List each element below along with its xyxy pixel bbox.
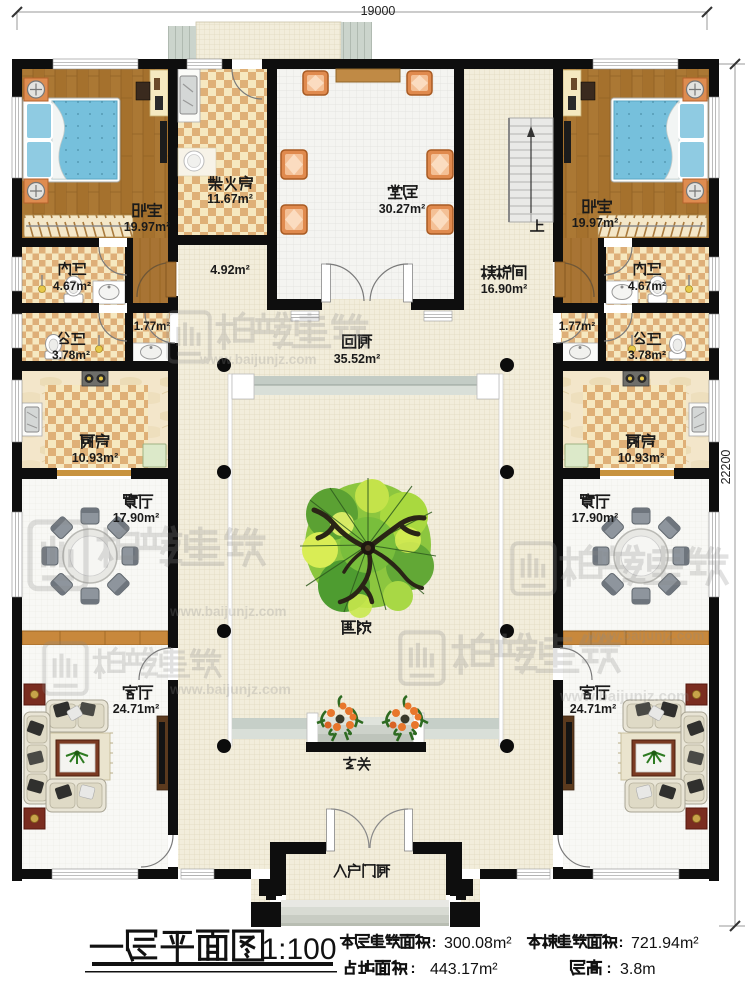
svg-text:35.52m²: 35.52m² bbox=[334, 352, 381, 366]
svg-text:721.94m²: 721.94m² bbox=[631, 935, 699, 952]
svg-text:16.90m²: 16.90m² bbox=[481, 282, 528, 296]
svg-text:19000: 19000 bbox=[361, 4, 396, 18]
svg-text::: : bbox=[607, 960, 612, 977]
svg-text:11.67m²: 11.67m² bbox=[207, 192, 253, 206]
svg-text:10.93m²: 10.93m² bbox=[618, 451, 665, 465]
svg-text:1.77m²: 1.77m² bbox=[134, 321, 171, 333]
svg-text:1:100: 1:100 bbox=[261, 933, 336, 966]
svg-text:443.17m²: 443.17m² bbox=[430, 961, 498, 978]
svg-text:17.90m²: 17.90m² bbox=[572, 511, 619, 525]
svg-text:www.baijunjz.com: www.baijunjz.com bbox=[199, 352, 317, 367]
svg-text:www.baijunjz.com: www.baijunjz.com bbox=[169, 604, 287, 619]
svg-text:3.78m²: 3.78m² bbox=[52, 348, 90, 362]
svg-text:www.baijunjz.com: www.baijunjz.com bbox=[169, 681, 291, 697]
svg-text:300.08m²: 300.08m² bbox=[444, 935, 512, 952]
svg-text:22200: 22200 bbox=[719, 450, 733, 485]
svg-text:4.92m²: 4.92m² bbox=[210, 263, 250, 277]
svg-text:3.78m²: 3.78m² bbox=[628, 348, 666, 362]
svg-text:30.27m²: 30.27m² bbox=[379, 202, 426, 216]
svg-text:www.baijunjz.com: www.baijunjz.com bbox=[559, 688, 689, 705]
svg-text:3.8m: 3.8m bbox=[620, 961, 656, 978]
svg-text:17.90m²: 17.90m² bbox=[113, 511, 160, 525]
svg-text:1.77m²: 1.77m² bbox=[559, 321, 596, 333]
svg-text::: : bbox=[411, 960, 416, 977]
svg-text:19.97m²: 19.97m² bbox=[572, 216, 619, 230]
svg-text::: : bbox=[619, 934, 624, 951]
svg-text::: : bbox=[432, 934, 437, 951]
svg-text:24.71m²: 24.71m² bbox=[113, 702, 160, 716]
svg-text:10.93m²: 10.93m² bbox=[72, 451, 119, 465]
svg-text:4.67m²: 4.67m² bbox=[628, 279, 666, 293]
svg-text:4.67m²: 4.67m² bbox=[53, 279, 91, 293]
svg-text:19.97m²: 19.97m² bbox=[124, 220, 171, 234]
